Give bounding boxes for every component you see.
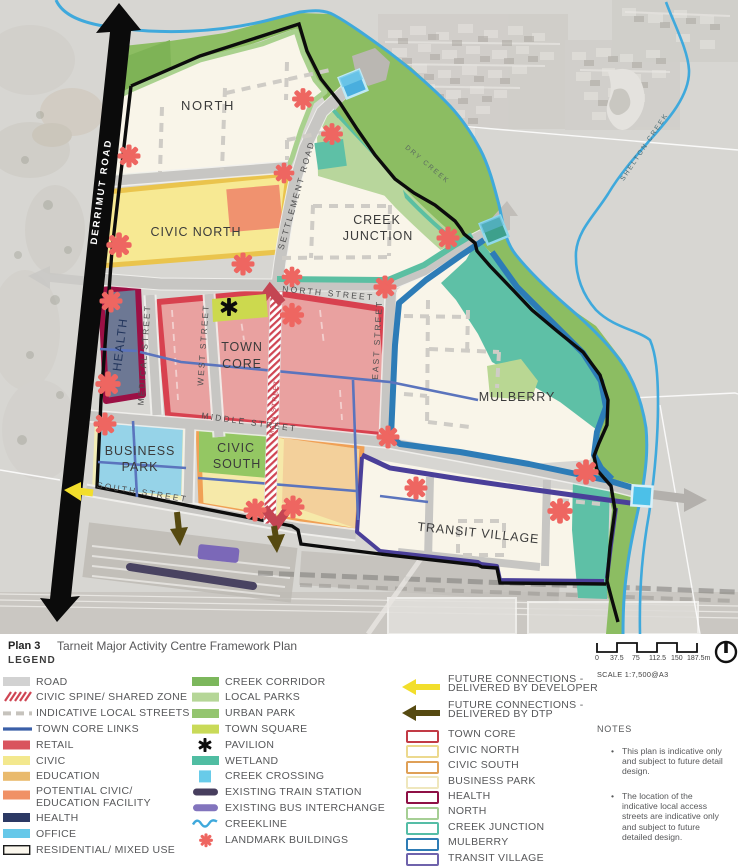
svg-text:CORE: CORE xyxy=(222,357,262,371)
svg-text:BUSINESS: BUSINESS xyxy=(105,444,175,458)
svg-text:NORTH: NORTH xyxy=(181,98,235,113)
svg-text:CIVIC NORTH: CIVIC NORTH xyxy=(151,225,242,239)
svg-text:CREEK: CREEK xyxy=(353,213,401,227)
svg-text:TOWN: TOWN xyxy=(221,340,263,354)
svg-text:JUNCTION: JUNCTION xyxy=(343,229,413,243)
svg-text:CIVIC: CIVIC xyxy=(217,441,255,455)
svg-text:SOUTH: SOUTH xyxy=(213,457,261,471)
svg-text:MULBERRY: MULBERRY xyxy=(479,390,555,404)
svg-text:PARK: PARK xyxy=(122,460,159,474)
